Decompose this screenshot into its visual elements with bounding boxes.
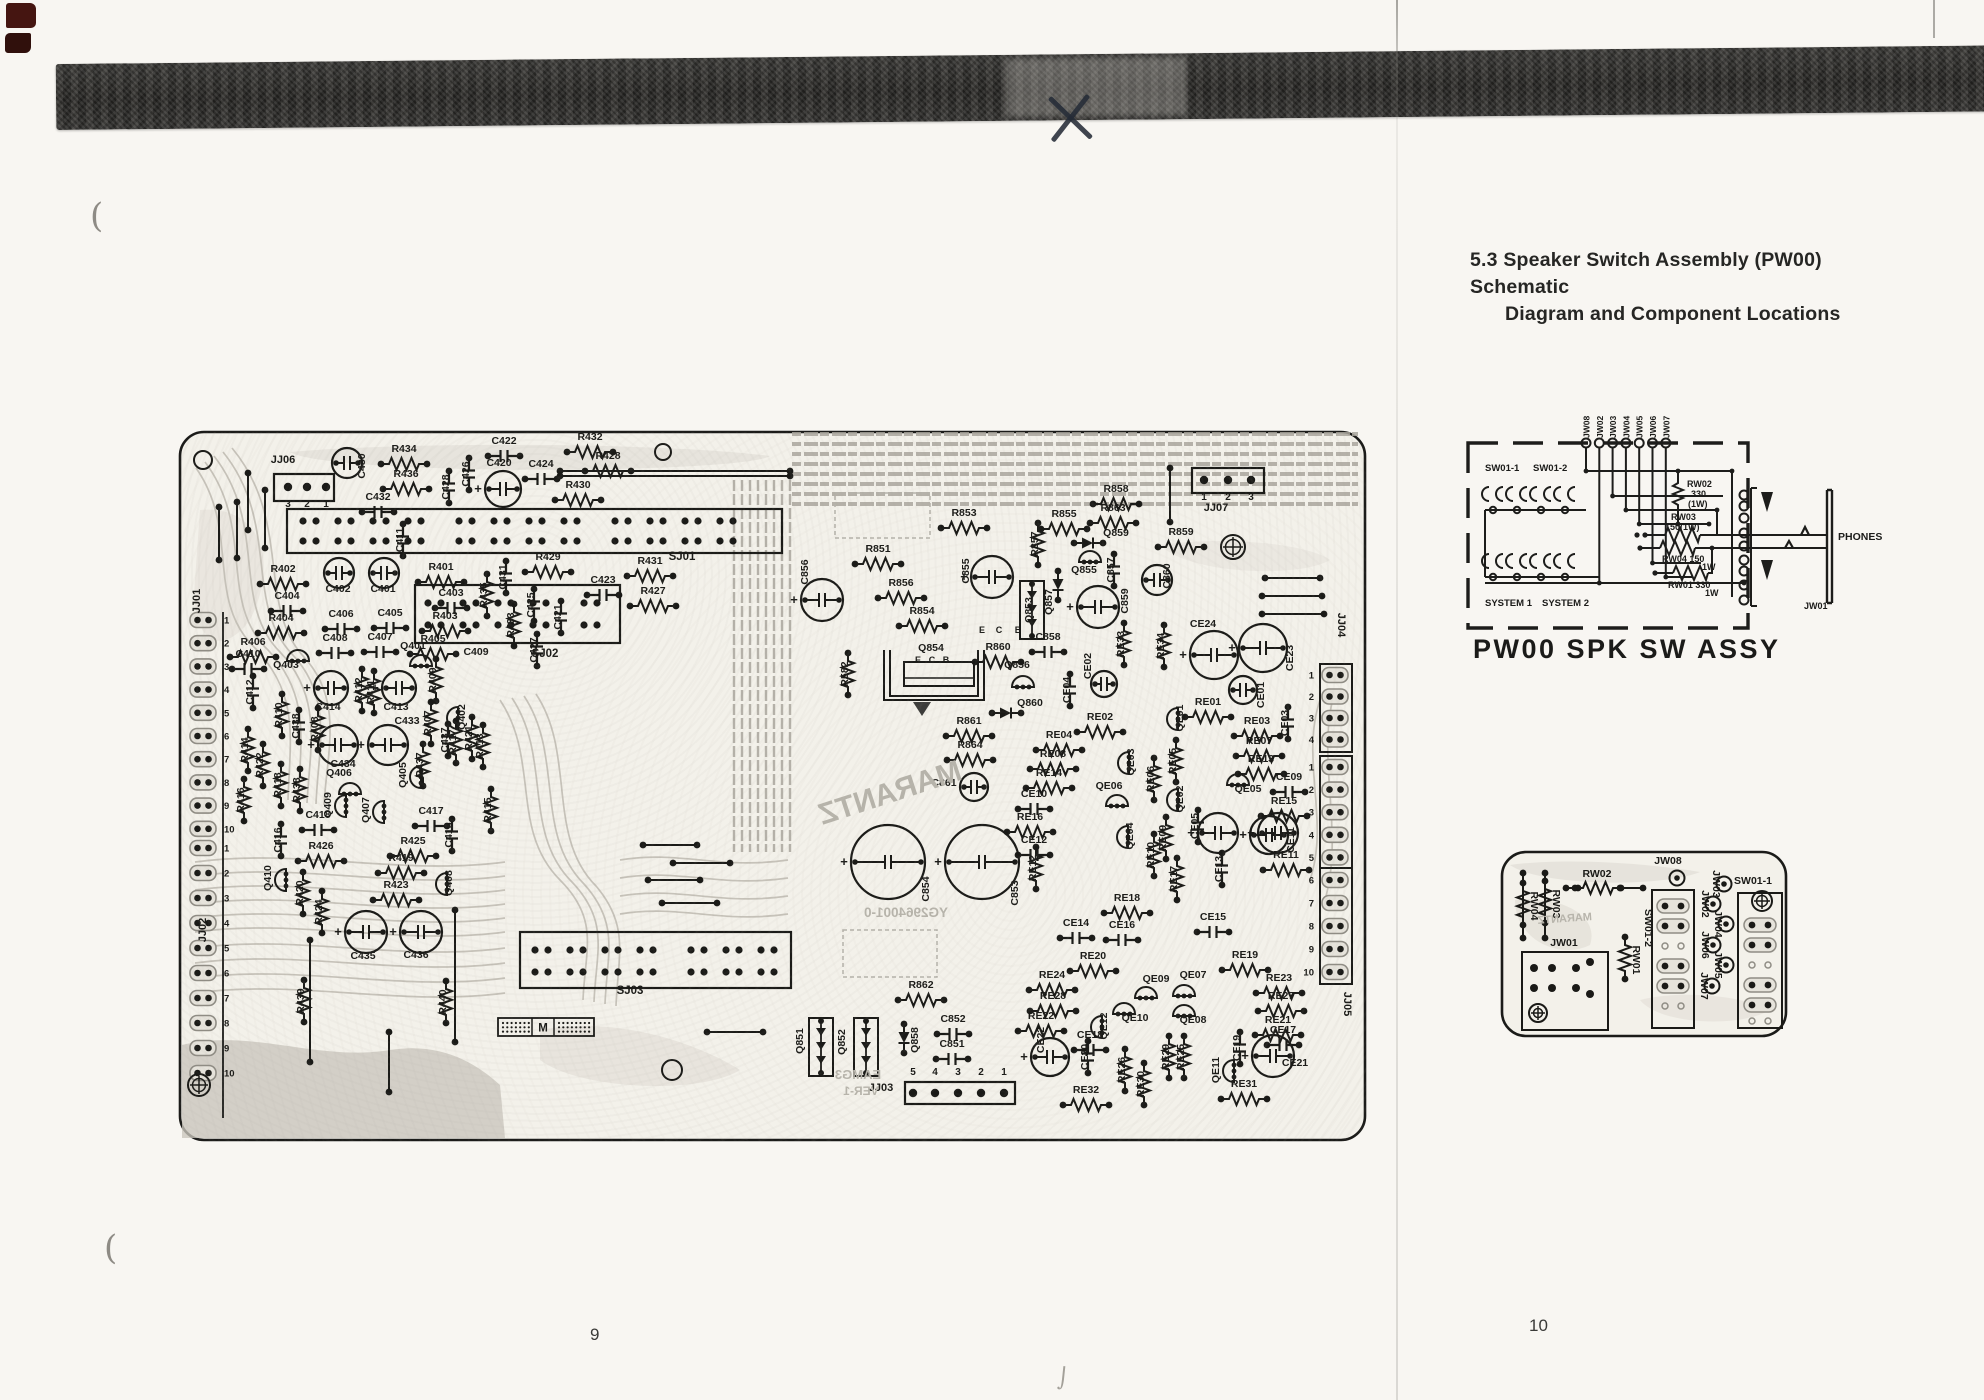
pcb-label-C433: C433	[394, 715, 419, 727]
pcb-label-R853: R853	[951, 507, 976, 519]
pcb-label-RE12: RE12	[1027, 855, 1039, 881]
pcb-label-C418: C418	[305, 809, 330, 821]
pcb-label-C415: C415	[443, 822, 455, 847]
pcb-label-1: 1	[1309, 671, 1315, 682]
pcb-label-R427: R427	[640, 585, 665, 597]
pcb-label-R422: R422	[254, 752, 266, 777]
pcb-label-R410: R410	[273, 702, 285, 727]
pcb-label-6: 6	[1309, 876, 1314, 887]
pcb-label-SJ02: SJ02	[532, 648, 559, 660]
resistor-value: 330	[1691, 489, 1706, 499]
pcb-label-Q410: Q410	[262, 865, 274, 891]
pcb-label-Q855: Q855	[1071, 564, 1097, 576]
pcb-label-C: C	[929, 655, 936, 665]
pcb-label-RE19: RE19	[1232, 949, 1258, 961]
pcb-label-8: 8	[224, 778, 229, 789]
pcb-label-CE13: CE13	[1213, 856, 1225, 882]
pcb-label-C408: C408	[322, 632, 347, 644]
pcb-label-CE23: CE23	[1284, 645, 1296, 671]
pcb-label-RE30: RE30	[1135, 1071, 1147, 1097]
pcb-label-CE03: CE03	[1279, 710, 1291, 736]
pcb-label-C403: C403	[438, 587, 463, 599]
pcb-label-C402: C402	[325, 583, 350, 595]
pcb-label-R403: R403	[432, 610, 457, 622]
pcb-label-QE06: QE06	[1096, 780, 1123, 792]
pcb-label-Q851: Q851	[794, 1028, 806, 1054]
pcb-label-CE02: CE02	[1082, 653, 1094, 679]
pcb-label-C853: C853	[1009, 880, 1021, 905]
pcb-label-R418: R418	[272, 772, 284, 797]
pcb-label-JW05: JW05	[1712, 951, 1724, 979]
main-pcb: 12345678910JJ0112345678910JJ021234JJ0412…	[180, 431, 1365, 1140]
pcb-label-C426: C426	[460, 461, 472, 486]
pcb-label-RE33: RE33	[1115, 631, 1127, 657]
pcb-label-RE06: RE06	[1145, 766, 1157, 792]
pcb-label-+: +	[1228, 640, 1236, 655]
pcb-label-CE24: CE24	[1190, 618, 1216, 630]
pcb-label-+: +	[371, 680, 379, 695]
page-number-right: 10	[1529, 1316, 1548, 1336]
pcb-label-RE01: RE01	[1195, 696, 1221, 708]
pcb-label-10: 10	[1303, 968, 1314, 979]
pcb-label-3: 3	[1248, 492, 1254, 503]
pcb-label-JJ05: JJ05	[1341, 992, 1353, 1016]
resistor-label: RW04 150	[1662, 554, 1704, 564]
pcb-label-R431: R431	[637, 555, 662, 567]
pcb-label-C405: C405	[377, 607, 402, 619]
pcb-label-R851: R851	[865, 543, 890, 555]
pcb-label-C856: C856	[799, 559, 811, 584]
pcb-label-R402: R402	[270, 563, 295, 575]
pcb-label-R428: R428	[595, 450, 620, 462]
pcb-label-C411: C411	[394, 528, 406, 553]
pcb-label-RE22: RE22	[1028, 1010, 1054, 1022]
pcb-label-7: 7	[1309, 899, 1314, 910]
pcb-label-5: 5	[224, 944, 230, 955]
pcb-label-R409: R409	[427, 667, 439, 692]
pcb-label-Q860: Q860	[1017, 697, 1043, 709]
pcb-label-RE07: RE07	[1246, 735, 1272, 747]
pcb-label-7: 7	[224, 755, 229, 766]
pcb-label-1: 1	[224, 844, 230, 855]
pcb-label-CE09: CE09	[1276, 771, 1302, 783]
pcb-label-C858: C858	[1035, 631, 1060, 643]
pcb-label-R407: R407	[422, 710, 434, 735]
pcb-label-CE14: CE14	[1063, 917, 1089, 929]
jumper-label: JW04	[1621, 416, 1631, 438]
pcb-label-E: E	[979, 625, 985, 635]
pcb-artwork-layer: 12345678910JJ0112345678910JJ021234JJ0412…	[0, 0, 1984, 1400]
pcb-label-1: 1	[1001, 1067, 1007, 1078]
system-label: SYSTEM 1	[1485, 598, 1533, 609]
pcb-label-R861: R861	[956, 715, 981, 727]
pcb-label-R433: R433	[505, 612, 517, 637]
pcb-label-R859: R859	[1168, 526, 1193, 538]
pcb-label-9: 9	[1309, 945, 1314, 956]
pcb-label-C432: C432	[365, 491, 390, 503]
pcb-label-3: 3	[285, 499, 291, 510]
pcb-label-QE02: QE02	[1174, 785, 1186, 812]
pcb-label-4: 4	[224, 685, 230, 696]
pcb-label-3: 3	[1309, 714, 1314, 725]
pcb-label-3: 3	[955, 1067, 961, 1078]
pcb-label-RE15: RE15	[1271, 795, 1297, 807]
pcb-label-C422: C422	[491, 435, 516, 447]
pcb-label-9: 9	[224, 801, 229, 812]
pcb-label-SJ01: SJ01	[669, 551, 696, 563]
system-label: SYSTEM 2	[1542, 598, 1589, 609]
pcb-label-2: 2	[304, 499, 310, 510]
pcb-label-+: +	[1247, 825, 1255, 840]
resistor-value: 150(1W)	[1665, 522, 1700, 532]
pcb-label-+: +	[1179, 647, 1187, 662]
pcb-label-R416: R416	[235, 787, 247, 812]
pcb-label-Q405: Q405	[397, 762, 409, 788]
pcb-label-C401: C401	[370, 583, 395, 595]
pcb-label-R857: R857	[1029, 531, 1041, 556]
pcb-label-4: 4	[224, 919, 230, 930]
pcb-label-RE04: RE04	[1046, 729, 1072, 741]
pcb-label-JW06: JW06	[1699, 931, 1711, 959]
pcb-label-B: B	[1015, 625, 1022, 635]
pcb-label-R432: R432	[577, 431, 602, 443]
pcb-label-R404: R404	[268, 612, 293, 624]
pcb-label-+: +	[334, 924, 342, 939]
pcb-label-RE05: RE05	[1167, 748, 1179, 774]
resistor-value: 1W	[1705, 588, 1719, 598]
pcb-label-QE08: QE08	[1180, 1014, 1207, 1026]
pcb-label-C428: C428	[440, 474, 452, 499]
pcb-label-4: 4	[1309, 735, 1315, 746]
pcb-label-6: 6	[224, 732, 229, 743]
pcb-label-4: 4	[1309, 830, 1315, 841]
pcb-label-RW02: RW02	[1583, 868, 1612, 880]
resistor-label: RW02	[1687, 479, 1712, 489]
pcb-label-JW07: JW07	[1698, 972, 1710, 1000]
phones-label: PHONES	[1838, 531, 1882, 543]
pcb-label-Q859: Q859	[1103, 527, 1129, 539]
assembly-title: PW00 SPK SW ASSY	[1473, 634, 1781, 664]
pcb-label-RE16: RE16	[1017, 811, 1043, 823]
pcb-label-C407: C407	[367, 631, 392, 643]
jumper-label: JW03	[1608, 416, 1618, 438]
pcb-label-EAMG3: EAMG3	[835, 1067, 881, 1082]
pcb-label-R438: R438	[291, 777, 303, 802]
pcb-label-JJ04: JJ04	[1335, 613, 1347, 638]
pcb-label-R412: R412	[353, 677, 365, 702]
pcb-label-C851: C851	[939, 1038, 964, 1050]
pcb-label-CE16: CE16	[1109, 919, 1135, 931]
pcb-label-C409: C409	[463, 646, 488, 658]
pcb-label-C424: C424	[528, 458, 553, 470]
pcb-label-R864: R864	[957, 739, 982, 751]
pcb-label-RE31: RE31	[1231, 1078, 1257, 1090]
resistor-value: 1W	[1702, 562, 1716, 572]
resistor-value: (1W)	[1688, 499, 1708, 509]
pw00-schematic: JW08 JW02 JW03 JW04 JW05 JW06 JW07 SW01-…	[1455, 398, 1945, 688]
pcb-label-R401: R401	[428, 561, 453, 573]
pcb-label-JJ01: JJ01	[191, 589, 203, 613]
pcb-label-JW01: JW01	[1550, 937, 1578, 949]
jumper-label: JW07	[1661, 416, 1671, 438]
pcb-label-RE13: RE13	[1248, 753, 1274, 765]
pcb-label-+: +	[389, 924, 397, 939]
pcb-label-SW01-2: SW01-2	[1642, 909, 1654, 947]
pcb-label-C417: C417	[418, 805, 443, 817]
jw01-label: JW01	[1804, 601, 1828, 611]
pcb-label-C412: C412	[244, 679, 256, 704]
pcb-label-Q407: Q407	[360, 797, 372, 823]
pcb-label-QE05: QE05	[1235, 783, 1262, 795]
pcb-label-3: 3	[224, 894, 229, 905]
pcb-label-R863: R863	[1100, 502, 1125, 514]
pcb-label-+: +	[1020, 1049, 1028, 1064]
pcb-label-RE08: RE08	[1040, 748, 1066, 760]
pcb-label-C421: C421	[552, 604, 564, 629]
pcb-label-R434: R434	[391, 443, 416, 455]
resistor-label: RW01 330	[1668, 580, 1710, 590]
pcb-label-2: 2	[1309, 785, 1314, 796]
pcb-label-R430: R430	[565, 479, 590, 491]
pcb-label-R423: R423	[383, 879, 408, 891]
pcb-label-SJ03: SJ03	[617, 985, 644, 997]
pcb-label-R435: R435	[478, 582, 490, 607]
pcb-label-8: 8	[224, 1019, 229, 1030]
pcb-label-3: 3	[224, 662, 229, 673]
pcb-label-C: C	[996, 625, 1003, 635]
scanned-page: ( ( ⌡ 5.3 Speaker Switch Assembly (PW00)…	[0, 0, 1984, 1400]
jumper-label: JW05	[1635, 416, 1645, 438]
pcb-label-5: 5	[224, 708, 230, 719]
pcb-label-R862: R862	[908, 979, 933, 991]
pcb-label-C434: C434	[330, 758, 355, 770]
resistor-label: RW03	[1671, 512, 1696, 522]
speaker-switch-pcb: JW08RW02RW04RW03JW01SW01-2RW01SW01-1JW03…	[1502, 852, 1786, 1036]
pcb-label-C423: C423	[590, 574, 615, 586]
pcb-label-R439: R439	[295, 988, 307, 1013]
pcb-label-E: E	[915, 655, 921, 665]
pcb-label-CE22: CE22	[1035, 1027, 1047, 1053]
pcb-label-C430: C430	[356, 453, 368, 478]
pcb-label-C406: C406	[328, 608, 353, 620]
pcb-label-1: 1	[323, 499, 329, 510]
pcb-label-5: 5	[910, 1067, 916, 1078]
pcb-label-6: 6	[224, 969, 229, 980]
pcb-label-RE09: RE09	[1157, 825, 1169, 851]
pcb-label-9: 9	[224, 1044, 229, 1055]
pcb-label-R419: R419	[388, 852, 413, 864]
pcb-label-C410: C410	[235, 648, 260, 660]
pcb-label-C404: C404	[274, 590, 299, 602]
pcb-label-C859: C859	[1119, 588, 1131, 613]
page-number-left: 9	[590, 1325, 599, 1345]
pcb-label-C852: C852	[940, 1013, 965, 1025]
pcb-label-RE24: RE24	[1039, 969, 1065, 981]
pcb-label-R413: R413	[474, 733, 486, 758]
pcb-label-1: 1	[224, 616, 230, 627]
pcb-label-C860: C860	[1161, 563, 1173, 588]
pcb-label-Q403: Q403	[273, 659, 299, 671]
pcb-label-RE17: RE17	[1168, 866, 1180, 892]
pcb-label-+: +	[303, 680, 311, 695]
jumper-label: JW06	[1648, 416, 1658, 438]
pcb-label-YG2964001-0: YG2964001-0	[864, 905, 948, 920]
pcb-label-JJ07: JJ07	[1204, 502, 1228, 514]
pcb-label-RE02: RE02	[1087, 711, 1113, 723]
pcb-label-C420: C420	[486, 457, 511, 469]
pcb-label-R858: R858	[1103, 483, 1128, 495]
pcb-label-C857: C857	[1105, 557, 1117, 582]
pcb-label-QE10: QE10	[1122, 1012, 1149, 1024]
pcb-label-+: +	[1241, 1048, 1249, 1063]
pcb-label-CE01: CE01	[1255, 682, 1267, 708]
pcb-label-5: 5	[1309, 853, 1315, 864]
pcb-label-CE10: CE10	[1021, 788, 1047, 800]
pcb-label-JW02: JW02	[1699, 890, 1711, 918]
pcb-label-Q408: Q408	[443, 870, 455, 896]
pcb-label-+: +	[474, 481, 482, 496]
switch-label: SW01-2	[1533, 463, 1567, 474]
pcb-label-+: +	[1239, 827, 1247, 842]
pcb-label-R424: R424	[313, 899, 325, 924]
pcb-label-10: 10	[224, 824, 235, 835]
pcb-label-R854: R854	[909, 605, 934, 617]
pcb-label-C435: C435	[350, 950, 375, 962]
pcb-label-QE03: QE03	[1125, 748, 1137, 775]
phones-jack	[1827, 490, 1832, 603]
pcb-label-R429: R429	[535, 551, 560, 563]
pcb-label-+: +	[357, 737, 365, 752]
pcb-label-C854: C854	[920, 876, 932, 901]
pcb-label-RE10: RE10	[1145, 842, 1157, 868]
pcb-label-C436: C436	[403, 949, 428, 961]
pcb-label-QE07: QE07	[1180, 969, 1207, 981]
pcb-label-R856: R856	[888, 577, 913, 589]
pcb-label-1: 1	[1309, 763, 1315, 774]
pcb-label-RE27: RE27	[1268, 990, 1294, 1002]
pcb-label-R860: R860	[985, 641, 1010, 653]
pcb-label-Q401: Q401	[400, 640, 426, 652]
pcb-label-R426: R426	[308, 840, 333, 852]
pcb-label-C855: C855	[960, 558, 972, 583]
pcb-label-C416: C416	[272, 827, 284, 852]
pcb-label-Q856: Q856	[1004, 659, 1030, 671]
pcb-label-B: B	[943, 655, 950, 665]
jumper-label: JW02	[1595, 416, 1605, 438]
pcb-label-RE14: RE14	[1036, 767, 1062, 779]
pcb-label-QE09: QE09	[1143, 973, 1170, 985]
pcb-label-2: 2	[224, 639, 229, 650]
pcb-label-Q854: Q854	[918, 642, 944, 654]
pcb-label-R425: R425	[400, 835, 425, 847]
pcb-label-4: 4	[932, 1067, 938, 1078]
pcb-label-+: +	[790, 592, 798, 607]
pcb-label-CE20: CE20	[1079, 1044, 1091, 1070]
switch-contacts	[1482, 487, 1575, 580]
pcb-label-JW04: JW04	[1712, 910, 1724, 938]
pcb-label-CE04: CE04	[1061, 677, 1073, 703]
pcb-label-+: +	[1066, 599, 1074, 614]
pcb-label-R582: R582	[839, 661, 851, 686]
pcb-label-RE25: RE25	[1175, 1044, 1187, 1070]
pcb-label-Q858: Q858	[909, 1027, 921, 1053]
pcb-label-+: +	[1187, 825, 1195, 840]
pcb-label-JJ06: JJ06	[271, 454, 295, 466]
pcb-label-JW08: JW08	[1654, 855, 1682, 867]
pcb-label-2: 2	[1309, 692, 1314, 703]
pcb-label-C438: C438	[290, 713, 302, 738]
pcb-label-CE21: CE21	[1282, 1057, 1308, 1069]
pcb-label-R415: R415	[482, 797, 494, 822]
pcb-label-C414: C414	[315, 701, 340, 713]
pcb-label-+: +	[934, 854, 942, 869]
pcb-label-+: +	[840, 854, 848, 869]
pcb-label-RE23: RE23	[1266, 972, 1292, 984]
pcb-label-RE29: RE29	[1160, 1044, 1172, 1070]
pcb-label-R436: R436	[393, 468, 418, 480]
pcb-label-Q852: Q852	[836, 1029, 848, 1055]
pcb-label-CE15: CE15	[1200, 911, 1226, 923]
pcb-label-QE04: QE04	[1124, 822, 1136, 849]
pcb-label-C431: C431	[497, 564, 509, 589]
pcb-label-R420: R420	[294, 880, 306, 905]
pcb-label-RE32: RE32	[1073, 1084, 1099, 1096]
pcb-label-8: 8	[1309, 922, 1314, 933]
pcb-label-RE34: RE34	[1155, 633, 1167, 659]
pcb-label-QE11: QE11	[1210, 1057, 1222, 1083]
pcb-label-RE03: RE03	[1244, 715, 1270, 727]
pcb-label-SW01-1: SW01-1	[1734, 875, 1772, 887]
pcb-label-R417: R417	[447, 729, 459, 754]
pcb-label-C425: C425	[525, 592, 537, 617]
pcb-label-Q853: Q853	[1023, 597, 1035, 623]
pcb-label-7: 7	[224, 994, 229, 1005]
pcb-label-JJ02: JJ02	[197, 918, 209, 942]
pcb-label-RE18: RE18	[1114, 892, 1140, 904]
pcb-label-R406: R406	[240, 636, 265, 648]
pcb-label-+: +	[307, 737, 315, 752]
jumper-label: JW08	[1582, 416, 1592, 438]
pcb-label-C413: C413	[383, 701, 408, 713]
pcb-label-RW01: RW01	[1630, 946, 1642, 975]
pcb-label-RE20: RE20	[1080, 950, 1106, 962]
pcb-label-R440: R440	[437, 989, 449, 1014]
pcb-label-R414: R414	[239, 737, 251, 762]
switch-label: SW01-1	[1485, 463, 1520, 474]
pcb-label-2: 2	[978, 1067, 984, 1078]
pcb-label-VER-1: VER-1	[843, 1084, 879, 1098]
pcb-label-R855: R855	[1051, 508, 1076, 520]
pcb-label-10: 10	[224, 1069, 235, 1080]
pcb-label-RE26: RE26	[1116, 1057, 1128, 1083]
pcb-label-2: 2	[224, 869, 229, 880]
pcb-label-M: M	[538, 1023, 548, 1035]
pcb-label-RE28: RE28	[1040, 990, 1066, 1002]
